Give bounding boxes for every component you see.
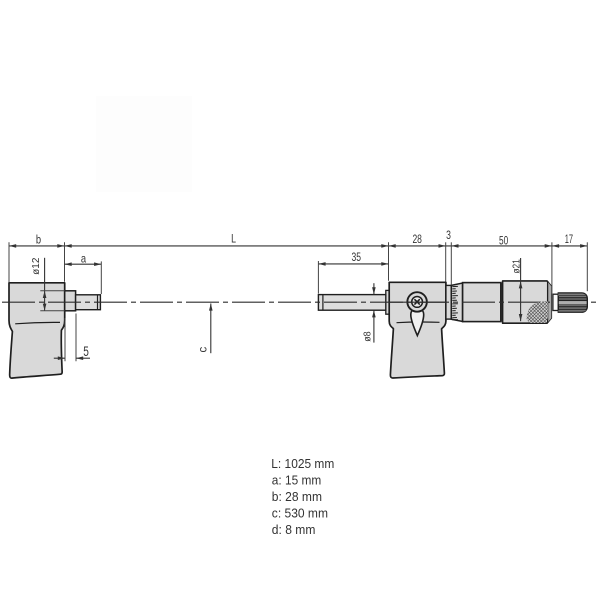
svg-text:5: 5 [83,344,89,359]
svg-text:28: 28 [412,232,422,246]
svg-text:b: b [36,232,41,246]
svg-text:a: a [81,251,86,265]
svg-text:ø8: ø8 [363,331,374,342]
svg-text:3: 3 [446,228,451,242]
svg-text:b: 28 mm: b: 28 mm [272,489,322,504]
svg-text:L: 1025 mm: L: 1025 mm [271,456,334,471]
svg-text:35: 35 [352,250,362,264]
svg-text:17: 17 [565,232,573,246]
svg-text:ø21: ø21 [511,259,522,274]
svg-text:c: c [197,346,209,352]
svg-text:d: 8 mm: d: 8 mm [272,522,316,537]
svg-text:ø12: ø12 [31,257,42,275]
svg-text:a: 15 mm: a: 15 mm [272,473,321,488]
svg-text:50: 50 [499,233,508,247]
svg-text:c: 530 mm: c: 530 mm [272,506,328,521]
svg-text:L: L [231,232,236,246]
